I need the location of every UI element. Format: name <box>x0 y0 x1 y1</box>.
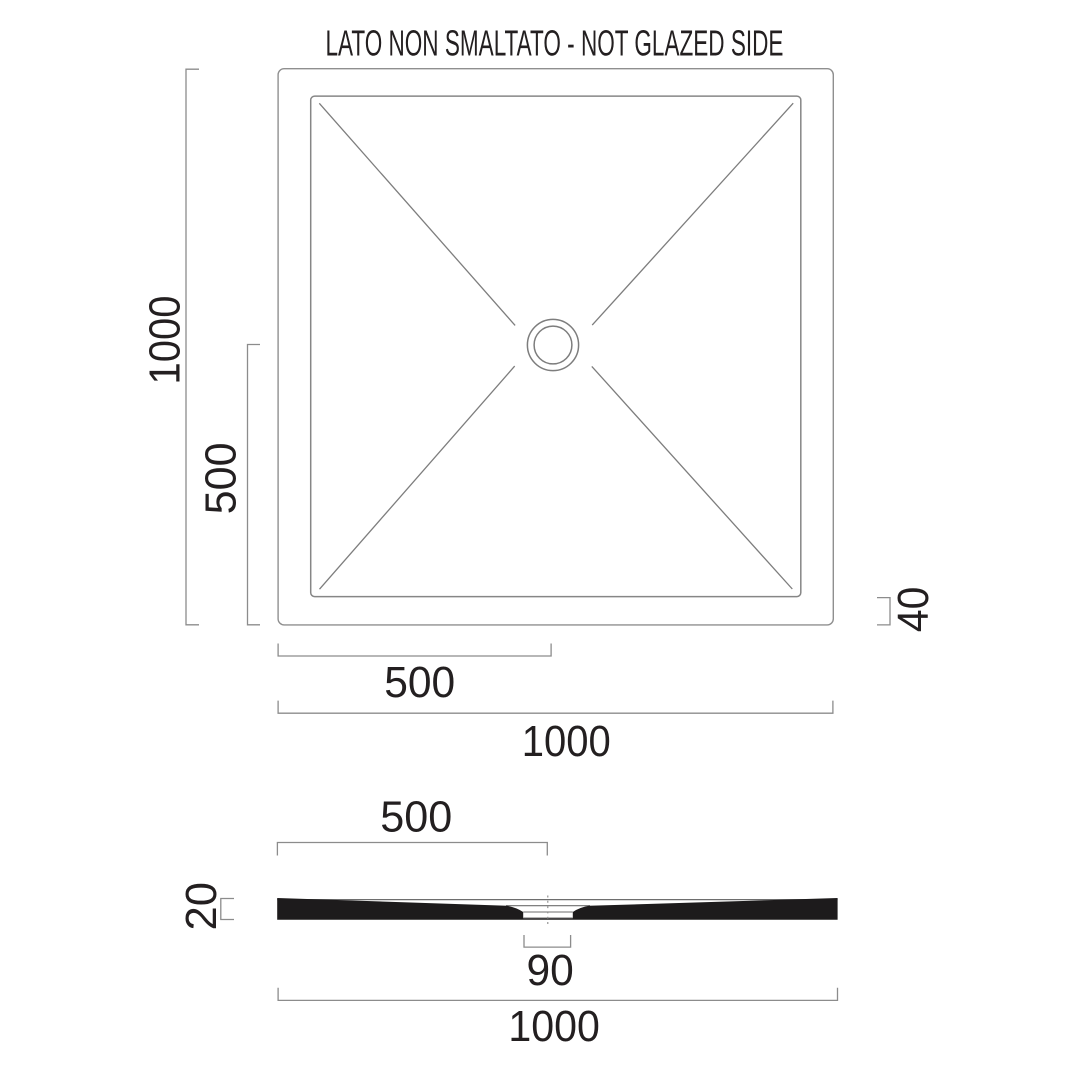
svg-text:40: 40 <box>889 587 938 633</box>
svg-text:1000: 1000 <box>141 296 190 385</box>
svg-text:500: 500 <box>380 793 452 842</box>
svg-text:90: 90 <box>526 946 573 995</box>
svg-text:500: 500 <box>197 442 246 514</box>
svg-text:LATO NON SMALTATO - NOT GLAZED: LATO NON SMALTATO - NOT GLAZED SIDE <box>325 23 783 64</box>
svg-text:1000: 1000 <box>522 717 611 766</box>
svg-text:500: 500 <box>384 658 455 707</box>
svg-text:20: 20 <box>177 882 226 931</box>
svg-text:1000: 1000 <box>508 1002 600 1051</box>
